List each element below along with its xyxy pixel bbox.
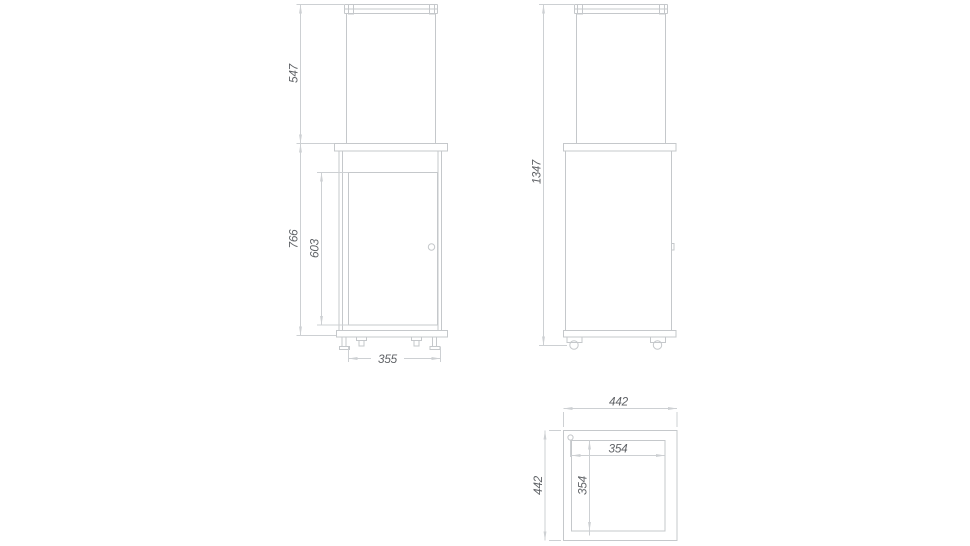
dimension-outer-depth: 442 — [531, 431, 561, 541]
dimension-inner-width: 354 — [572, 442, 666, 456]
dimension-inner-depth: 354 — [576, 441, 590, 536]
dim-label-1347: 1347 — [530, 159, 544, 184]
front-top-plate — [335, 144, 448, 152]
dim-label-354-width: 354 — [609, 442, 629, 456]
front-foot-outer-right — [433, 337, 437, 347]
front-foot-outer-left — [342, 337, 346, 347]
side-base-plate — [564, 331, 677, 338]
dim-label-442-depth: 442 — [531, 475, 545, 495]
top-view: 442 442 354 354 — [531, 395, 677, 541]
side-casters — [567, 337, 666, 349]
front-wheel-left — [357, 337, 367, 341]
front-top-cap — [345, 5, 438, 15]
side-view: 1347 — [530, 5, 677, 350]
door-hinge — [672, 244, 675, 251]
front-base-plate — [337, 331, 448, 338]
dimension-base-width: 355 — [349, 347, 441, 366]
side-body — [566, 151, 672, 330]
front-body — [339, 151, 442, 330]
front-door — [349, 173, 438, 326]
dim-label-354-depth: 354 — [576, 475, 590, 495]
dim-label-547: 547 — [287, 63, 301, 83]
drawing-sheet: 547 766 603 355 — [0, 0, 970, 546]
front-wheel-right — [412, 337, 422, 341]
door-handle-icon — [428, 244, 434, 250]
front-view: 547 766 603 355 — [287, 5, 448, 367]
side-top-plate — [564, 144, 677, 152]
technical-drawing-canvas: 547 766 603 355 — [0, 0, 970, 546]
side-top-cap — [575, 5, 668, 15]
dimension-outer-width: 442 — [564, 395, 678, 428]
dim-label-766: 766 — [287, 229, 301, 249]
dim-label-442-width: 442 — [609, 395, 629, 409]
front-feet — [340, 337, 441, 350]
dimension-glass-height: 547 — [287, 5, 345, 144]
dim-label-603: 603 — [308, 238, 322, 258]
valve-knob-icon — [568, 435, 573, 457]
dim-label-355: 355 — [378, 352, 398, 366]
front-glass-tube — [347, 14, 436, 144]
dimension-total-height: 1347 — [530, 5, 575, 346]
side-glass-tube — [577, 14, 666, 144]
